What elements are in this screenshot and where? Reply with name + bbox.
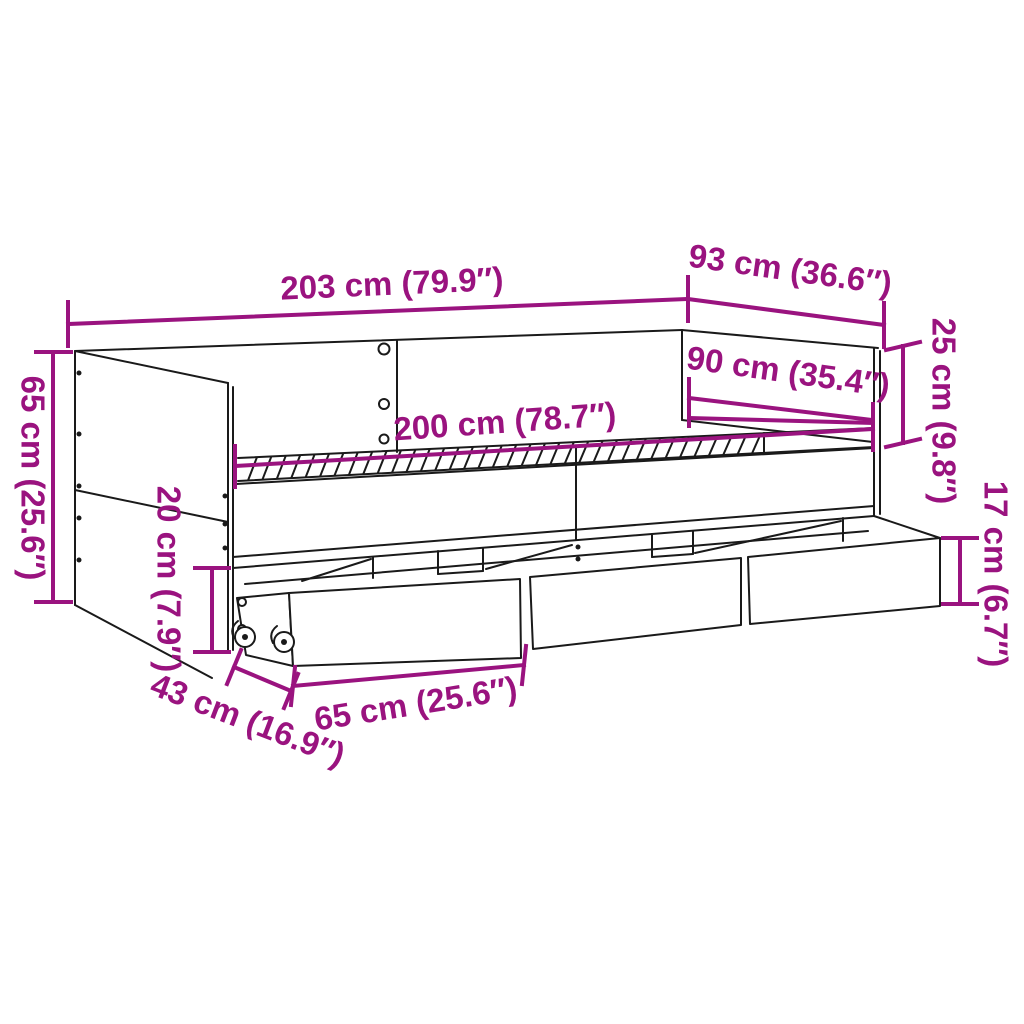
dim-drawer-height: 17 cm (6.7″): [943, 481, 1014, 667]
dimension-diagram-page: 203 cm (79.9″) 93 cm (36.6″) 25 cm (9.8″…: [0, 0, 1024, 1024]
dim-total-height: 65 cm (25.6″): [14, 352, 71, 602]
dim-label-backrest-height: 25 cm (9.8″): [925, 318, 962, 504]
dim-label-total-height: 65 cm (25.6″): [14, 376, 51, 581]
dimension-annotations: 203 cm (79.9″) 93 cm (36.6″) 25 cm (9.8″…: [14, 237, 1014, 774]
dim-label-overall-length: 203 cm (79.9″): [280, 260, 505, 307]
drawer-2-front: [530, 558, 741, 649]
dim-label-drawer-height: 17 cm (6.7″): [977, 481, 1014, 667]
dim-label-sleeping-width: 90 cm (35.4″): [684, 339, 892, 404]
dim-label-frame-clearance: 20 cm (7.9″): [150, 486, 187, 672]
dim-label-sleeping-length: 200 cm (78.7″): [392, 395, 617, 447]
storage-drawers: [237, 538, 940, 666]
daybed-dimension-diagram: 203 cm (79.9″) 93 cm (36.6″) 25 cm (9.8″…: [0, 0, 1024, 1024]
drawer-1-front: [289, 579, 521, 666]
drawer-3-front: [748, 538, 940, 624]
dim-overall-depth: 93 cm (36.6″): [686, 237, 894, 347]
dim-sleeping-width: 90 cm (35.4″): [684, 339, 892, 426]
dim-label-drawer-width: 65 cm (25.6″): [312, 669, 520, 738]
dim-backrest-height: 25 cm (9.8″): [886, 318, 962, 504]
dim-label-overall-depth: 93 cm (36.6″): [686, 237, 894, 302]
